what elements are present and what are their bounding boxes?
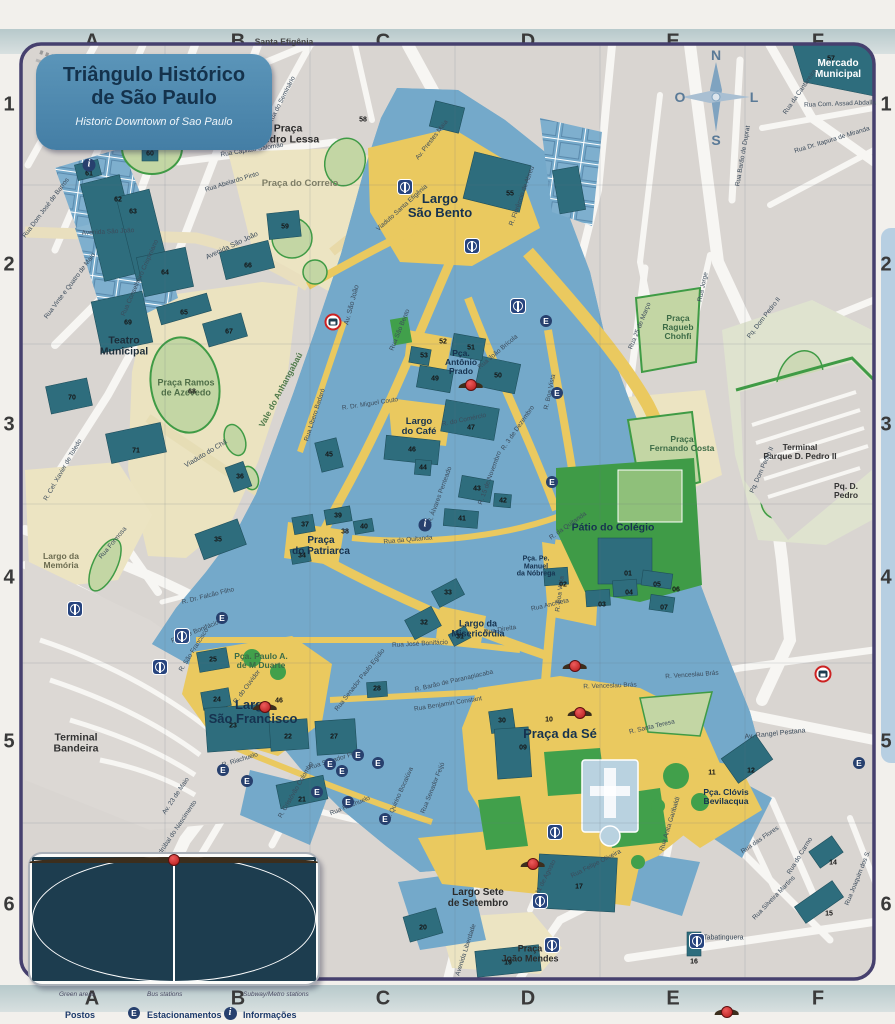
building-number: 69 xyxy=(124,320,132,327)
legend-item-informacoes: i Informações Turísticas Touristic Infor… xyxy=(221,1006,315,1024)
grid-row-label: 5 xyxy=(3,731,14,754)
place-label-largo-sete: Largo Sete de Setembro xyxy=(448,888,509,910)
building-number: 49 xyxy=(431,376,439,383)
legend-label: Informações Turísticas xyxy=(243,1010,297,1024)
building-number: 35 xyxy=(214,537,222,544)
legend-item-postos: Postos Policiais Police xyxy=(37,1006,125,1024)
building-number: 20 xyxy=(419,925,427,932)
place-label-terminal-parque: Terminal Parque D. Pedro II xyxy=(763,443,836,461)
metro-icon xyxy=(511,299,525,313)
building-number: 33 xyxy=(444,590,452,597)
building-number: 12 xyxy=(747,768,755,775)
legend-sublabel: Bus stations xyxy=(147,991,182,998)
building-number: 57 xyxy=(827,56,835,63)
grid-row-label: 1 xyxy=(880,94,891,117)
building-number: 24 xyxy=(213,697,221,704)
compass-rose: N S L O xyxy=(678,50,758,146)
building-number: 66 xyxy=(244,263,252,270)
police-icon xyxy=(459,379,483,391)
building-number: 06 xyxy=(672,587,680,594)
building-number: 62 xyxy=(114,197,122,204)
metro-icon xyxy=(175,629,189,643)
map-title-line2: de São Paulo xyxy=(36,87,272,110)
parking-icon: E xyxy=(379,813,391,825)
grid-row-label: 2 xyxy=(880,254,891,277)
place-label-praca-ragueb: Praça Ragueb Chohfi xyxy=(662,314,693,342)
grid-row-label: 3 xyxy=(880,414,891,437)
metro-icon xyxy=(533,894,547,908)
building-number: 23 xyxy=(229,723,237,730)
building-number: 51 xyxy=(467,345,475,352)
building-number: 41 xyxy=(458,516,466,523)
building-number: 16 xyxy=(690,959,698,966)
bus-terminal-icon xyxy=(815,666,832,683)
building-number: 28 xyxy=(373,686,381,693)
legend-sublabel: Green areas xyxy=(59,991,95,998)
legend-label: Postos Policiais xyxy=(65,1010,102,1024)
place-label-pca-clovis: Pça. Clóvis Bevilacqua xyxy=(703,788,748,806)
building-number: 64 xyxy=(161,270,169,277)
building-number: 40 xyxy=(360,524,368,531)
police-icon xyxy=(563,660,587,672)
grid-row-label: 4 xyxy=(3,567,14,590)
map-subtitle: Historic Downtown of Sao Paulo xyxy=(36,116,272,128)
building-number: 15 xyxy=(825,911,833,918)
info-icon: i xyxy=(83,159,96,172)
compass-l: L xyxy=(750,89,759,105)
place-label-pca-manuel: Pça. Pe. Manuel da Nóbrega xyxy=(517,556,556,579)
bus-terminal-icon xyxy=(325,314,342,331)
grid-row-label: 4 xyxy=(880,567,891,590)
legend-item-estacionamentos: E Estacionamentos privativos Private par… xyxy=(125,1006,221,1024)
place-label-praca-do-correio: Praça do Correio xyxy=(262,179,339,189)
metro-icon xyxy=(153,660,167,674)
police-icon xyxy=(37,1006,61,1019)
building-number: 17 xyxy=(575,884,583,891)
parking-icon: E xyxy=(342,796,354,808)
building-number: 61 xyxy=(85,171,93,178)
building-number: 58 xyxy=(359,117,367,124)
grid-row-label: 5 xyxy=(880,731,891,754)
metro-icon xyxy=(398,180,412,194)
grid-row-label: 3 xyxy=(3,414,14,437)
map-title-box: Triângulo Histórico de São Paulo Histori… xyxy=(36,54,272,150)
building-number: 39 xyxy=(334,513,342,520)
building-number: 68 xyxy=(188,389,196,396)
parking-icon: E xyxy=(217,764,229,776)
legend-sublabel: Subway/Metro stations xyxy=(243,991,309,998)
building-number: 38 xyxy=(341,529,349,536)
building-number: 65 xyxy=(180,310,188,317)
place-label-praca-fernando-costa: Praça Fernando Costa xyxy=(650,435,715,453)
building-number: 60 xyxy=(146,151,154,158)
building-number: 70 xyxy=(68,395,76,402)
police-icon xyxy=(715,1006,739,1018)
parking-icon: E xyxy=(540,315,552,327)
place-label-pca-paulo-duarte: Pça. Paulo A. de M Duarte xyxy=(234,652,288,670)
grid-row-label: 6 xyxy=(880,894,891,917)
legend-label: Estacionamentos privativos xyxy=(147,1010,222,1024)
parking-icon: E xyxy=(546,476,558,488)
building-number: 53 xyxy=(420,353,428,360)
building-number: 32 xyxy=(420,620,428,627)
parking-icon: E xyxy=(241,775,253,787)
parking-icon: E xyxy=(125,1006,143,1019)
building-number: 11 xyxy=(708,770,715,777)
grid-row-label: 6 xyxy=(3,894,14,917)
building-number: 67 xyxy=(225,329,233,336)
compass-n: N xyxy=(711,47,721,63)
legend-box: Legenda Triângulo Histórico Historic Dow… xyxy=(28,852,320,986)
map-title-line1: Triângulo Histórico xyxy=(36,64,272,87)
police-icon xyxy=(521,858,545,870)
building-number: 34 xyxy=(298,553,306,560)
building-number: 02 xyxy=(559,582,567,589)
building-number: 71 xyxy=(132,448,140,455)
building-number: 03 xyxy=(598,602,606,609)
building-number: 52 xyxy=(439,339,447,346)
metro-icon xyxy=(545,938,559,952)
place-label-terminal-bandeira: Terminal Bandeira xyxy=(54,733,99,756)
place-label-pq-d-pedro: Pq. D. Pedro xyxy=(822,482,871,500)
building-number: 42 xyxy=(499,498,507,505)
parking-icon: E xyxy=(853,757,865,769)
parking-icon: E xyxy=(352,749,364,761)
place-label-praca-da-se: Praça da Sé xyxy=(523,727,597,741)
building-number: 44 xyxy=(419,465,427,472)
building-number: 19 xyxy=(504,960,512,967)
parking-icon: E xyxy=(551,387,563,399)
building-number: 25 xyxy=(209,657,217,664)
building-number: 63 xyxy=(129,209,137,216)
building-number: 59 xyxy=(281,224,289,231)
building-number: 14 xyxy=(829,860,837,867)
building-number: 01 xyxy=(624,571,632,578)
grid-row-label: 1 xyxy=(3,94,14,117)
police-icon xyxy=(568,707,592,719)
metro-icon xyxy=(221,950,239,965)
building-number: 10 xyxy=(545,717,553,724)
info-icon: i xyxy=(221,1006,239,1020)
building-number: 07 xyxy=(660,605,668,612)
metro-icon xyxy=(68,602,82,616)
building-number: 43 xyxy=(473,486,481,493)
building-number: 22 xyxy=(284,734,292,741)
place-label-praca-ramos: Praça Ramos de Azevedo xyxy=(157,378,214,397)
place-label-patio-do-colegio: Pátio do Colégio xyxy=(572,522,655,533)
place-label-santa-efigenia: Santa Efigênia xyxy=(255,37,314,46)
place-label-pca-antonio-prado: Pça. Antônio Prado xyxy=(445,349,477,377)
building-number: 37 xyxy=(301,522,309,529)
building-number: 30 xyxy=(498,718,506,725)
map-page: A B C D E F A B C D E F 1 2 3 4 5 6 1 2 … xyxy=(0,0,895,1024)
parking-icon: E xyxy=(324,758,336,770)
police-icon xyxy=(253,701,277,713)
building-number: 55 xyxy=(506,191,514,198)
place-label-largo-da-memoria: Largo da Memória xyxy=(43,552,79,570)
compass-o: O xyxy=(675,89,686,105)
building-number: 21 xyxy=(298,797,306,804)
parking-icon: E xyxy=(336,765,348,777)
info-icon: i xyxy=(419,519,432,532)
metro-icon xyxy=(465,239,479,253)
compass-s: S xyxy=(711,132,720,148)
building-number: 45 xyxy=(325,452,333,459)
parking-icon: E xyxy=(216,612,228,624)
building-number: 27 xyxy=(330,734,338,741)
parking-icon: E xyxy=(372,757,384,769)
building-number: 31 xyxy=(456,634,464,641)
building-number: 04 xyxy=(625,590,633,597)
place-label-largo-do-cafe: Largo do Café xyxy=(402,417,437,438)
metro-icon xyxy=(548,825,562,839)
place-label-teatro-municipal: Teatro Municipal xyxy=(100,336,148,359)
building-number: 47 xyxy=(467,425,475,432)
parking-icon: E xyxy=(311,786,323,798)
building-number: 09 xyxy=(519,745,527,752)
building-number: 05 xyxy=(653,582,661,589)
place-label-mercado-municipal: Mercado Municipal xyxy=(815,59,861,81)
building-number: 36 xyxy=(236,474,244,481)
metro-icon xyxy=(690,934,704,948)
building-number: 50 xyxy=(494,373,502,380)
grid-row-label: 2 xyxy=(3,254,14,277)
building-number: 46 xyxy=(408,447,416,454)
